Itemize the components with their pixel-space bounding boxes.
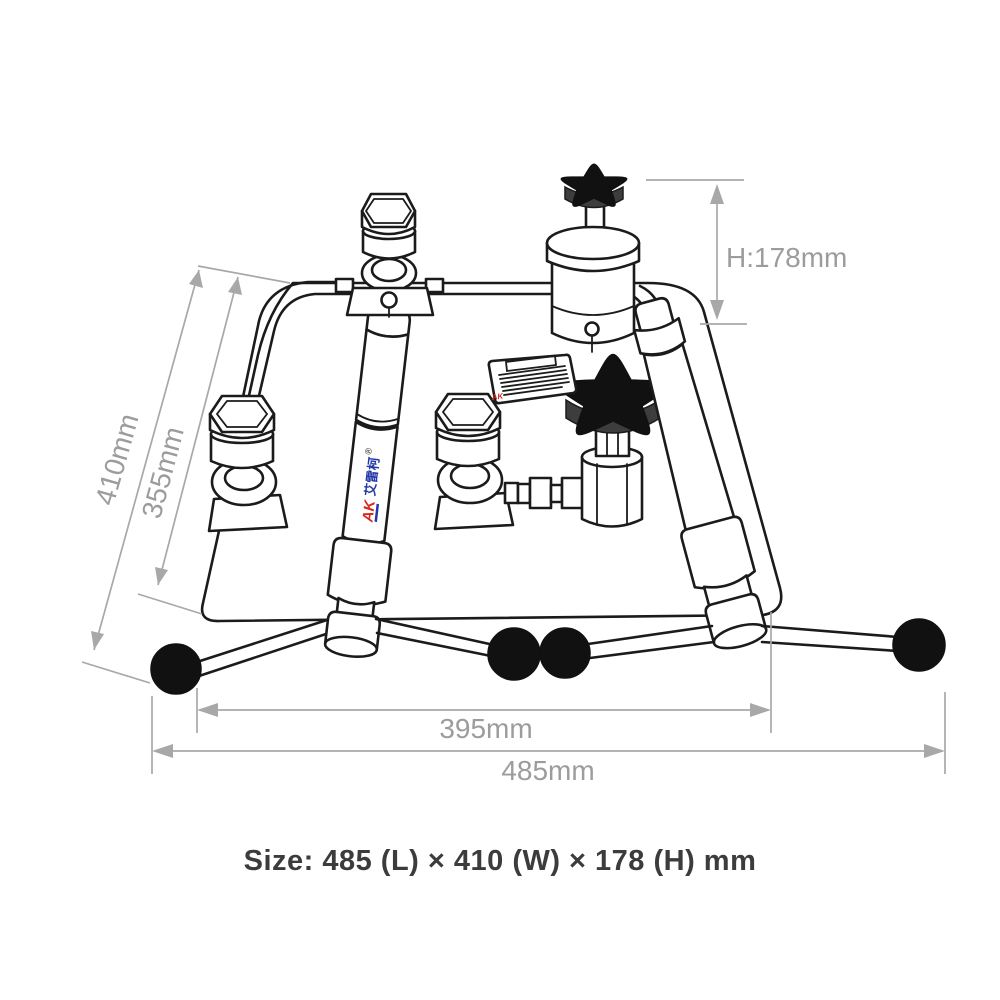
oil-reservoir bbox=[547, 164, 639, 352]
handle-ball-center-left bbox=[488, 628, 540, 680]
dimension-outer-length: 485mm bbox=[152, 692, 945, 786]
handle-ball-right bbox=[893, 619, 945, 671]
top-port-fitting bbox=[336, 194, 443, 317]
height-dimension-label: H:178mm bbox=[726, 242, 847, 273]
bracket-left-wing bbox=[336, 279, 353, 292]
size-caption: Size: 485 (L) × 410 (W) × 178 (H) mm bbox=[0, 845, 1000, 878]
reservoir-knob bbox=[561, 164, 626, 207]
coupling-pipe bbox=[505, 478, 583, 508]
product-dimension-figure: AK 艾雷柯 ® bbox=[0, 0, 1000, 1000]
outer-length-dimension-label: 485mm bbox=[501, 755, 594, 786]
handle-ball-left bbox=[151, 644, 201, 694]
handle-bar-left bbox=[199, 620, 327, 676]
dimension-inner-length: 395mm bbox=[197, 612, 771, 744]
handle-bar-right bbox=[762, 626, 898, 651]
handle-ball-center-right bbox=[540, 628, 590, 678]
inner-length-dimension-label: 395mm bbox=[439, 713, 532, 744]
